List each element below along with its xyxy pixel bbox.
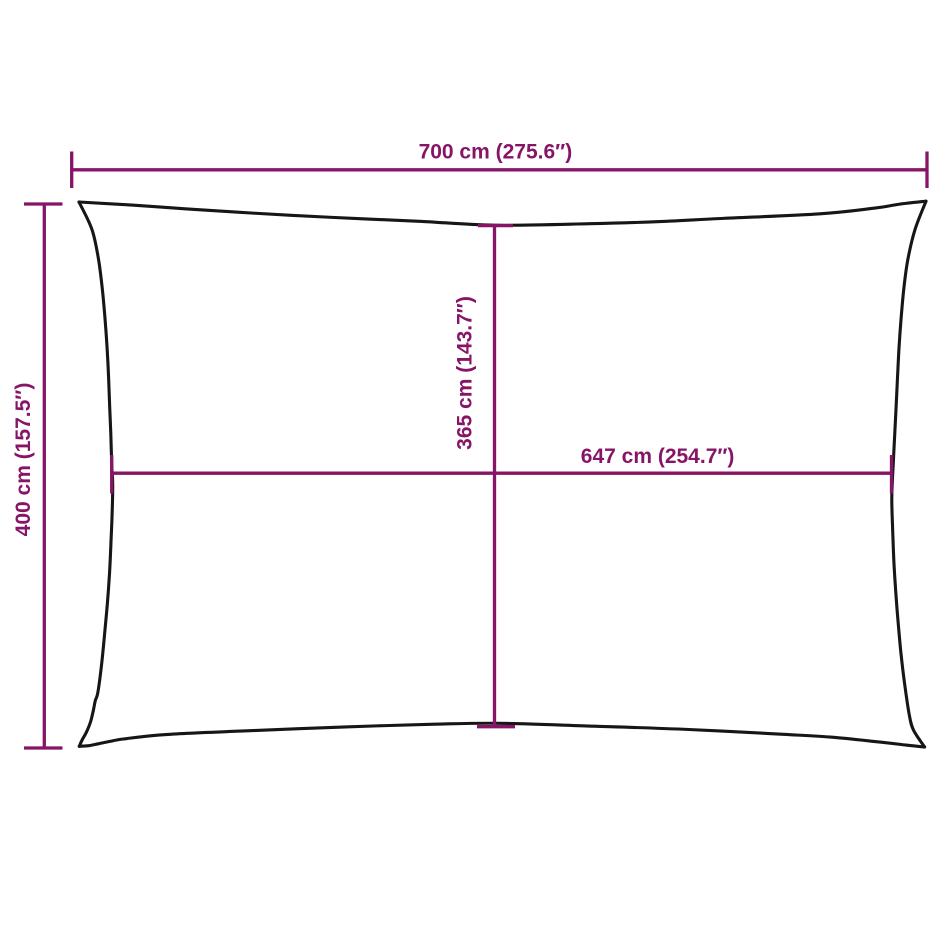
svg-text:400 cm (157.5″): 400 cm (157.5″) xyxy=(12,383,35,537)
svg-text:647 cm (254.7″): 647 cm (254.7″) xyxy=(581,445,735,468)
svg-text:700 cm (275.6″): 700 cm (275.6″) xyxy=(419,140,573,163)
svg-text:365 cm (143.7″): 365 cm (143.7″) xyxy=(453,296,476,450)
